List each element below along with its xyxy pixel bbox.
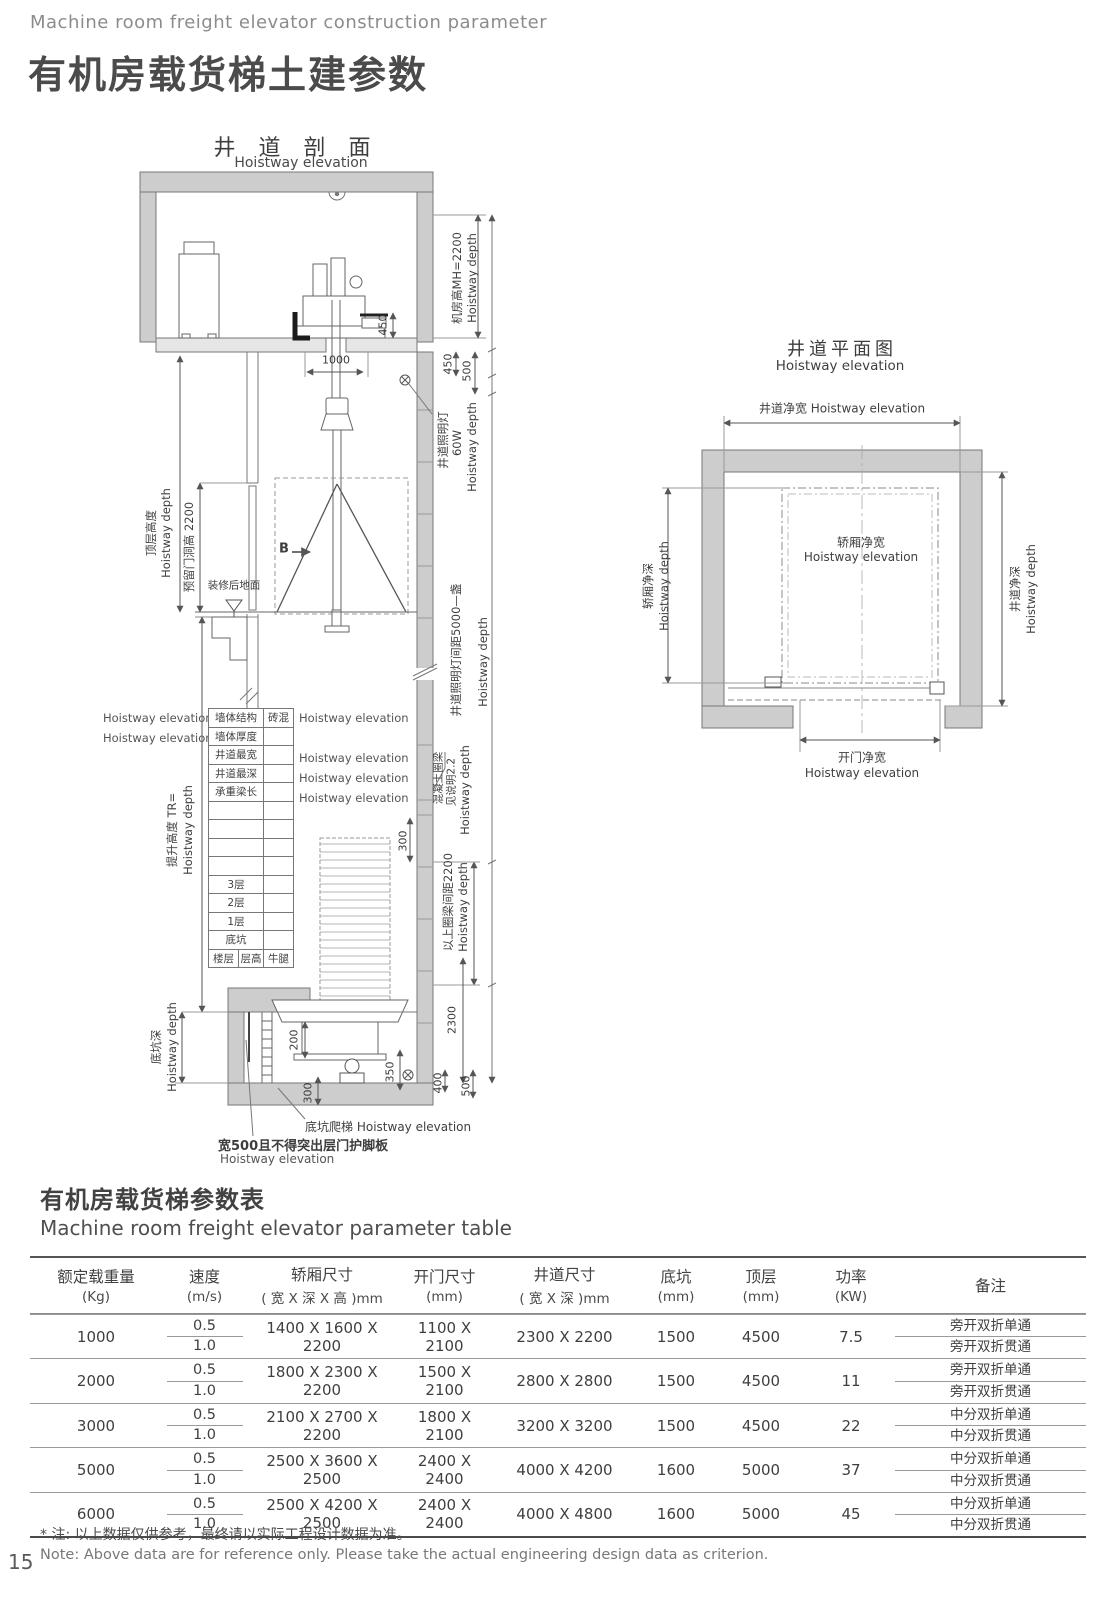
- pit-ladder-zh: 底坑爬梯: [305, 1120, 353, 1134]
- cell-power: 7.5: [807, 1328, 895, 1346]
- remark-divider: [895, 1425, 1086, 1426]
- remark-divider: [895, 1514, 1086, 1515]
- label-shaft-net-width: 井道净宽 Hoistway elevation: [759, 400, 925, 417]
- mini-cell: 墙体厚度: [209, 727, 264, 746]
- cell-power: 45: [807, 1505, 895, 1523]
- label-car-net-width-en: Hoistway elevation: [804, 550, 918, 564]
- mini-cell: [264, 727, 294, 746]
- header-speed-zh: 速度: [162, 1265, 247, 1287]
- header-door-size: 开门尺寸(mm): [397, 1265, 492, 1305]
- speed-divider: [167, 1425, 243, 1426]
- header-door-size-zh: 开门尺寸: [397, 1265, 492, 1287]
- cell-shaft-size: 4000 X 4200: [492, 1461, 637, 1479]
- label-wall-thickness-en: Hoistway elevation: [103, 731, 213, 745]
- label-top-floor-height-en: Hoistway depth: [159, 488, 173, 578]
- cell-top-floor: 5000: [715, 1461, 807, 1479]
- mini-cell: 底坑: [209, 931, 264, 950]
- cell-door-size: 2400 X 2400: [397, 1496, 492, 1532]
- header-pit-zh: 底坑: [637, 1265, 715, 1287]
- dim-450-slab: 450: [442, 354, 455, 375]
- cell-load: 1000: [30, 1328, 162, 1346]
- page-subtitle-en: Machine room freight elevator constructi…: [30, 12, 547, 33]
- mini-cell: 楼层: [209, 949, 239, 968]
- label-shaft-light-en: Hoistway depth: [465, 402, 479, 492]
- speed-divider: [167, 1336, 243, 1337]
- speed-top: 0.5: [162, 1496, 247, 1513]
- label-machine-room-height: 机房高MH=2200: [449, 232, 465, 324]
- dim-450-machine: 450: [377, 315, 390, 336]
- remark-bottom: 旁开双折贯通: [895, 1383, 1086, 1401]
- remark-bottom: 旁开双折贯通: [895, 1338, 1086, 1356]
- label-shaft-widest-en: Hoistway elevation: [299, 751, 409, 765]
- cell-pit: 1500: [637, 1328, 715, 1346]
- label-concrete-ring-beam-en: Hoistway depth: [458, 745, 472, 835]
- speed-top: 0.5: [162, 1407, 247, 1424]
- cell-load: 2000: [30, 1372, 162, 1390]
- cell-speed: 0.51.0: [162, 1318, 247, 1356]
- section-mark-b: B: [279, 542, 289, 557]
- label-beam-spacing-en: Hoistway depth: [456, 862, 470, 952]
- dim-2300: 2300: [446, 1006, 459, 1034]
- header-remark: 备注: [895, 1274, 1086, 1296]
- cell-pit: 1500: [637, 1372, 715, 1390]
- label-travel-height: 提升高度 TR=: [164, 793, 180, 867]
- header-car-size-unit: ( 宽 X 深 X 高 )mm: [247, 1287, 397, 1307]
- cell-speed: 0.51.0: [162, 1362, 247, 1400]
- footnote-zh: * 注: 以上数据仅供参考，最终请以实际工程设计数据为准。: [40, 1524, 411, 1544]
- cell-top-floor: 4500: [715, 1372, 807, 1390]
- label-car-net-width-zh: 轿厢净宽: [837, 534, 885, 551]
- header-car-size-zh: 轿厢尺寸: [247, 1263, 397, 1285]
- cell-shaft-size: 3200 X 3200: [492, 1417, 637, 1435]
- remark-divider: [895, 1336, 1086, 1337]
- remark-top: 旁开双折单通: [895, 1361, 1086, 1379]
- mini-cell: 砖混: [264, 709, 294, 728]
- param-table-title-en: Machine room freight elevator parameter …: [40, 1216, 512, 1240]
- dim-300-beam: 300: [397, 831, 410, 852]
- label-pit-depth-en: Hoistway depth: [165, 1002, 179, 1092]
- cell-door-size: 1800 X 2100: [397, 1408, 492, 1444]
- table-row: 3000 0.51.0 2100 X 2700 X 2200 1800 X 21…: [30, 1403, 1086, 1447]
- mini-cell: [264, 820, 294, 839]
- remark-top: 中分双折单通: [895, 1450, 1086, 1468]
- speed-top: 0.5: [162, 1362, 247, 1379]
- dim-300-pit: 300: [302, 1083, 315, 1104]
- mini-cell: [209, 801, 264, 820]
- mini-cell: [264, 838, 294, 857]
- mini-cell: [209, 857, 264, 876]
- cell-shaft-size: 4000 X 4800: [492, 1505, 637, 1523]
- page-title: 有机房载货梯土建参数: [28, 44, 428, 99]
- header-shaft-size-unit: ( 宽 X 深 )mm: [492, 1287, 637, 1307]
- remark-divider: [895, 1381, 1086, 1382]
- cell-pit: 1600: [637, 1461, 715, 1479]
- label-pit-ladder: 底坑爬梯 Hoistway elevation: [305, 1118, 471, 1135]
- parameter-table-header: 额定载重量(Kg) 速度(m/s) 轿厢尺寸( 宽 X 深 X 高 )mm 开门…: [30, 1258, 1086, 1314]
- dim-400-pit: 400: [432, 1073, 445, 1094]
- remark-top: 中分双折单通: [895, 1406, 1086, 1424]
- cell-power: 11: [807, 1372, 895, 1390]
- cell-car-size: 1800 X 2300 X 2200: [247, 1363, 397, 1399]
- mini-cell: [264, 764, 294, 783]
- label-car-net-depth-zh: 轿厢净深: [640, 563, 656, 609]
- label-see-note: 见说明2.2: [444, 758, 459, 806]
- label-bearing-beam-en: Hoistway elevation: [299, 791, 409, 805]
- mini-cell: [209, 820, 264, 839]
- speed-divider: [167, 1381, 243, 1382]
- shaft-spec-mini-table: 墙体结构砖混 墙体厚度 井道最宽 井道最深 承重梁长 3层 2层 1层 底坑 楼…: [208, 708, 294, 968]
- label-finished-floor: 装修后地面: [208, 578, 261, 593]
- header-power: 功率(KW): [807, 1265, 895, 1305]
- header-pit-unit: (mm): [637, 1289, 715, 1305]
- section-view-title-en: Hoistway elevation: [234, 155, 367, 171]
- cell-car-size: 2500 X 3600 X 2500: [247, 1452, 397, 1488]
- speed-divider: [167, 1470, 243, 1471]
- label-shaft-net-depth-zh: 井道净深: [1007, 566, 1023, 612]
- cell-load: 6000: [30, 1505, 162, 1523]
- speed-bottom: 1.0: [162, 1338, 247, 1355]
- label-shaft-net-depth-en: Hoistway depth: [1024, 544, 1038, 634]
- header-door-size-unit: (mm): [397, 1289, 492, 1305]
- cell-door-size: 1500 X 2100: [397, 1363, 492, 1399]
- speed-bottom: 1.0: [162, 1472, 247, 1489]
- speed-top: 0.5: [162, 1451, 247, 1468]
- header-speed: 速度(m/s): [162, 1265, 247, 1305]
- param-table-title-zh: 有机房载货梯参数表: [40, 1180, 265, 1215]
- dim-500-slab: 500: [461, 361, 474, 382]
- header-load: 额定载重量(Kg): [30, 1265, 162, 1305]
- cell-pit: 1600: [637, 1505, 715, 1523]
- dim-200-pit: 200: [288, 1030, 301, 1051]
- label-machine-room-height-en: Hoistway depth: [465, 233, 479, 323]
- cell-shaft-size: 2300 X 2200: [492, 1328, 637, 1346]
- remark-divider: [895, 1470, 1086, 1471]
- plan-view-title-en: Hoistway elevation: [776, 358, 905, 374]
- cell-top-floor: 5000: [715, 1505, 807, 1523]
- cell-speed: 0.51.0: [162, 1451, 247, 1489]
- cell-pit: 1500: [637, 1417, 715, 1435]
- shaft-net-width-zh: 井道净宽: [759, 402, 807, 416]
- cell-car-size: 1400 X 1600 X 2200: [247, 1319, 397, 1355]
- cell-door-size: 2400 X 2400: [397, 1452, 492, 1488]
- mini-cell: [264, 801, 294, 820]
- label-shaft-light: 井道照明灯: [435, 411, 451, 469]
- footnote-en: Note: Above data are for reference only.…: [40, 1547, 768, 1563]
- label-brick-mix-en: Hoistway elevation: [299, 711, 409, 725]
- speed-bottom: 1.0: [162, 1383, 247, 1400]
- header-power-unit: (KW): [807, 1289, 895, 1305]
- label-shaft-deepest-en: Hoistway elevation: [299, 771, 409, 785]
- mini-cell: [264, 875, 294, 894]
- mini-cell: [264, 912, 294, 931]
- cell-speed: 0.51.0: [162, 1407, 247, 1445]
- pit-ladder-en: Hoistway elevation: [357, 1120, 471, 1134]
- catalog-page: Machine room freight elevator constructi…: [0, 0, 1116, 1599]
- label-light-spacing-en: Hoistway depth: [476, 617, 490, 707]
- header-pit: 底坑(mm): [637, 1265, 715, 1305]
- remark-top: 旁开双折单通: [895, 1317, 1086, 1335]
- header-remark-zh: 备注: [895, 1274, 1086, 1296]
- header-speed-unit: (m/s): [162, 1289, 247, 1305]
- mini-cell: [264, 746, 294, 765]
- label-travel-height-en: Hoistway depth: [181, 785, 195, 875]
- dim-1000: 1000: [322, 354, 350, 367]
- mini-cell: 承重梁长: [209, 783, 264, 802]
- cell-car-size: 2100 X 2700 X 2200: [247, 1408, 397, 1444]
- mini-cell: [209, 838, 264, 857]
- speed-bottom: 1.0: [162, 1427, 247, 1444]
- dim-350-pit: 350: [384, 1062, 397, 1083]
- label-door-net-width-zh: 开门净宽: [838, 749, 886, 766]
- shaft-net-width-en: Hoistway elevation: [811, 402, 925, 416]
- label-door-net-width-en: Hoistway elevation: [805, 766, 919, 780]
- cell-remark: 中分双折单通中分双折贯通: [895, 1406, 1086, 1445]
- table-row: 5000 0.51.0 2500 X 3600 X 2500 2400 X 24…: [30, 1447, 1086, 1491]
- cell-load: 3000: [30, 1417, 162, 1435]
- mini-cell: [264, 931, 294, 950]
- remark-bottom: 中分双折贯通: [895, 1427, 1086, 1445]
- mini-cell: 墙体结构: [209, 709, 264, 728]
- label-toe-guard-en: Hoistway elevation: [220, 1152, 334, 1166]
- header-car-size: 轿厢尺寸( 宽 X 深 X 高 )mm: [247, 1263, 397, 1307]
- speed-top: 0.5: [162, 1318, 247, 1335]
- mini-cell: 牛腿: [264, 949, 294, 968]
- remark-bottom: 中分双折贯通: [895, 1472, 1086, 1490]
- mini-cell: 1层: [209, 912, 264, 931]
- label-light-spacing: 井道照明灯间距5000—盏: [448, 584, 464, 717]
- header-load-zh: 额定载重量: [30, 1265, 162, 1287]
- table-row: 1000 0.51.0 1400 X 1600 X 2200 1100 X 21…: [30, 1314, 1086, 1358]
- speed-divider: [167, 1514, 243, 1515]
- cell-remark: 旁开双折单通旁开双折贯通: [895, 1361, 1086, 1400]
- cell-top-floor: 4500: [715, 1328, 807, 1346]
- cell-top-floor: 4500: [715, 1417, 807, 1435]
- label-door-opening-height: 预留门洞高 2200: [181, 502, 197, 592]
- cell-remark: 中分双折单通中分双折贯通: [895, 1450, 1086, 1489]
- page-number: 15: [8, 1550, 33, 1574]
- cell-power: 37: [807, 1461, 895, 1479]
- mini-cell: [264, 783, 294, 802]
- cell-power: 22: [807, 1417, 895, 1435]
- mini-cell: [264, 857, 294, 876]
- label-car-net-depth-en: Hoistway depth: [657, 541, 671, 631]
- header-top-floor-zh: 顶层: [715, 1265, 807, 1287]
- mini-cell: 2层: [209, 894, 264, 913]
- header-top-floor-unit: (mm): [715, 1289, 807, 1305]
- label-shaft-light-watt: 60W: [450, 430, 464, 456]
- label-pit-depth: 底坑深: [148, 1030, 164, 1065]
- header-power-zh: 功率: [807, 1265, 895, 1287]
- mini-cell: 井道最宽: [209, 746, 264, 765]
- mini-cell: 3层: [209, 875, 264, 894]
- label-beam-spacing: 以上圈梁间距2200: [440, 853, 456, 951]
- cell-remark: 中分双折单通中分双折贯通: [895, 1495, 1086, 1534]
- remark-top: 中分双折单通: [895, 1495, 1086, 1513]
- cell-remark: 旁开双折单通旁开双折贯通: [895, 1317, 1086, 1356]
- header-top-floor: 顶层(mm): [715, 1265, 807, 1305]
- mini-cell: [264, 894, 294, 913]
- header-load-unit: (Kg): [30, 1289, 162, 1305]
- mini-cell: 层高: [239, 949, 264, 968]
- label-wall-structure-en: Hoistway elevation: [103, 711, 213, 725]
- mini-cell: 井道最深: [209, 764, 264, 783]
- dim-500-pit: 500: [460, 1076, 473, 1097]
- cell-shaft-size: 2800 X 2800: [492, 1372, 637, 1390]
- parameter-table: 额定载重量(Kg) 速度(m/s) 轿厢尺寸( 宽 X 深 X 高 )mm 开门…: [30, 1256, 1086, 1538]
- cell-door-size: 1100 X 2100: [397, 1319, 492, 1355]
- cell-load: 5000: [30, 1461, 162, 1479]
- remark-bottom: 中分双折贯通: [895, 1516, 1086, 1534]
- header-shaft-size-zh: 井道尺寸: [492, 1263, 637, 1285]
- table-row: 2000 0.51.0 1800 X 2300 X 2200 1500 X 21…: [30, 1358, 1086, 1402]
- label-top-floor-height: 顶层高度: [143, 510, 159, 556]
- header-shaft-size: 井道尺寸( 宽 X 深 )mm: [492, 1263, 637, 1307]
